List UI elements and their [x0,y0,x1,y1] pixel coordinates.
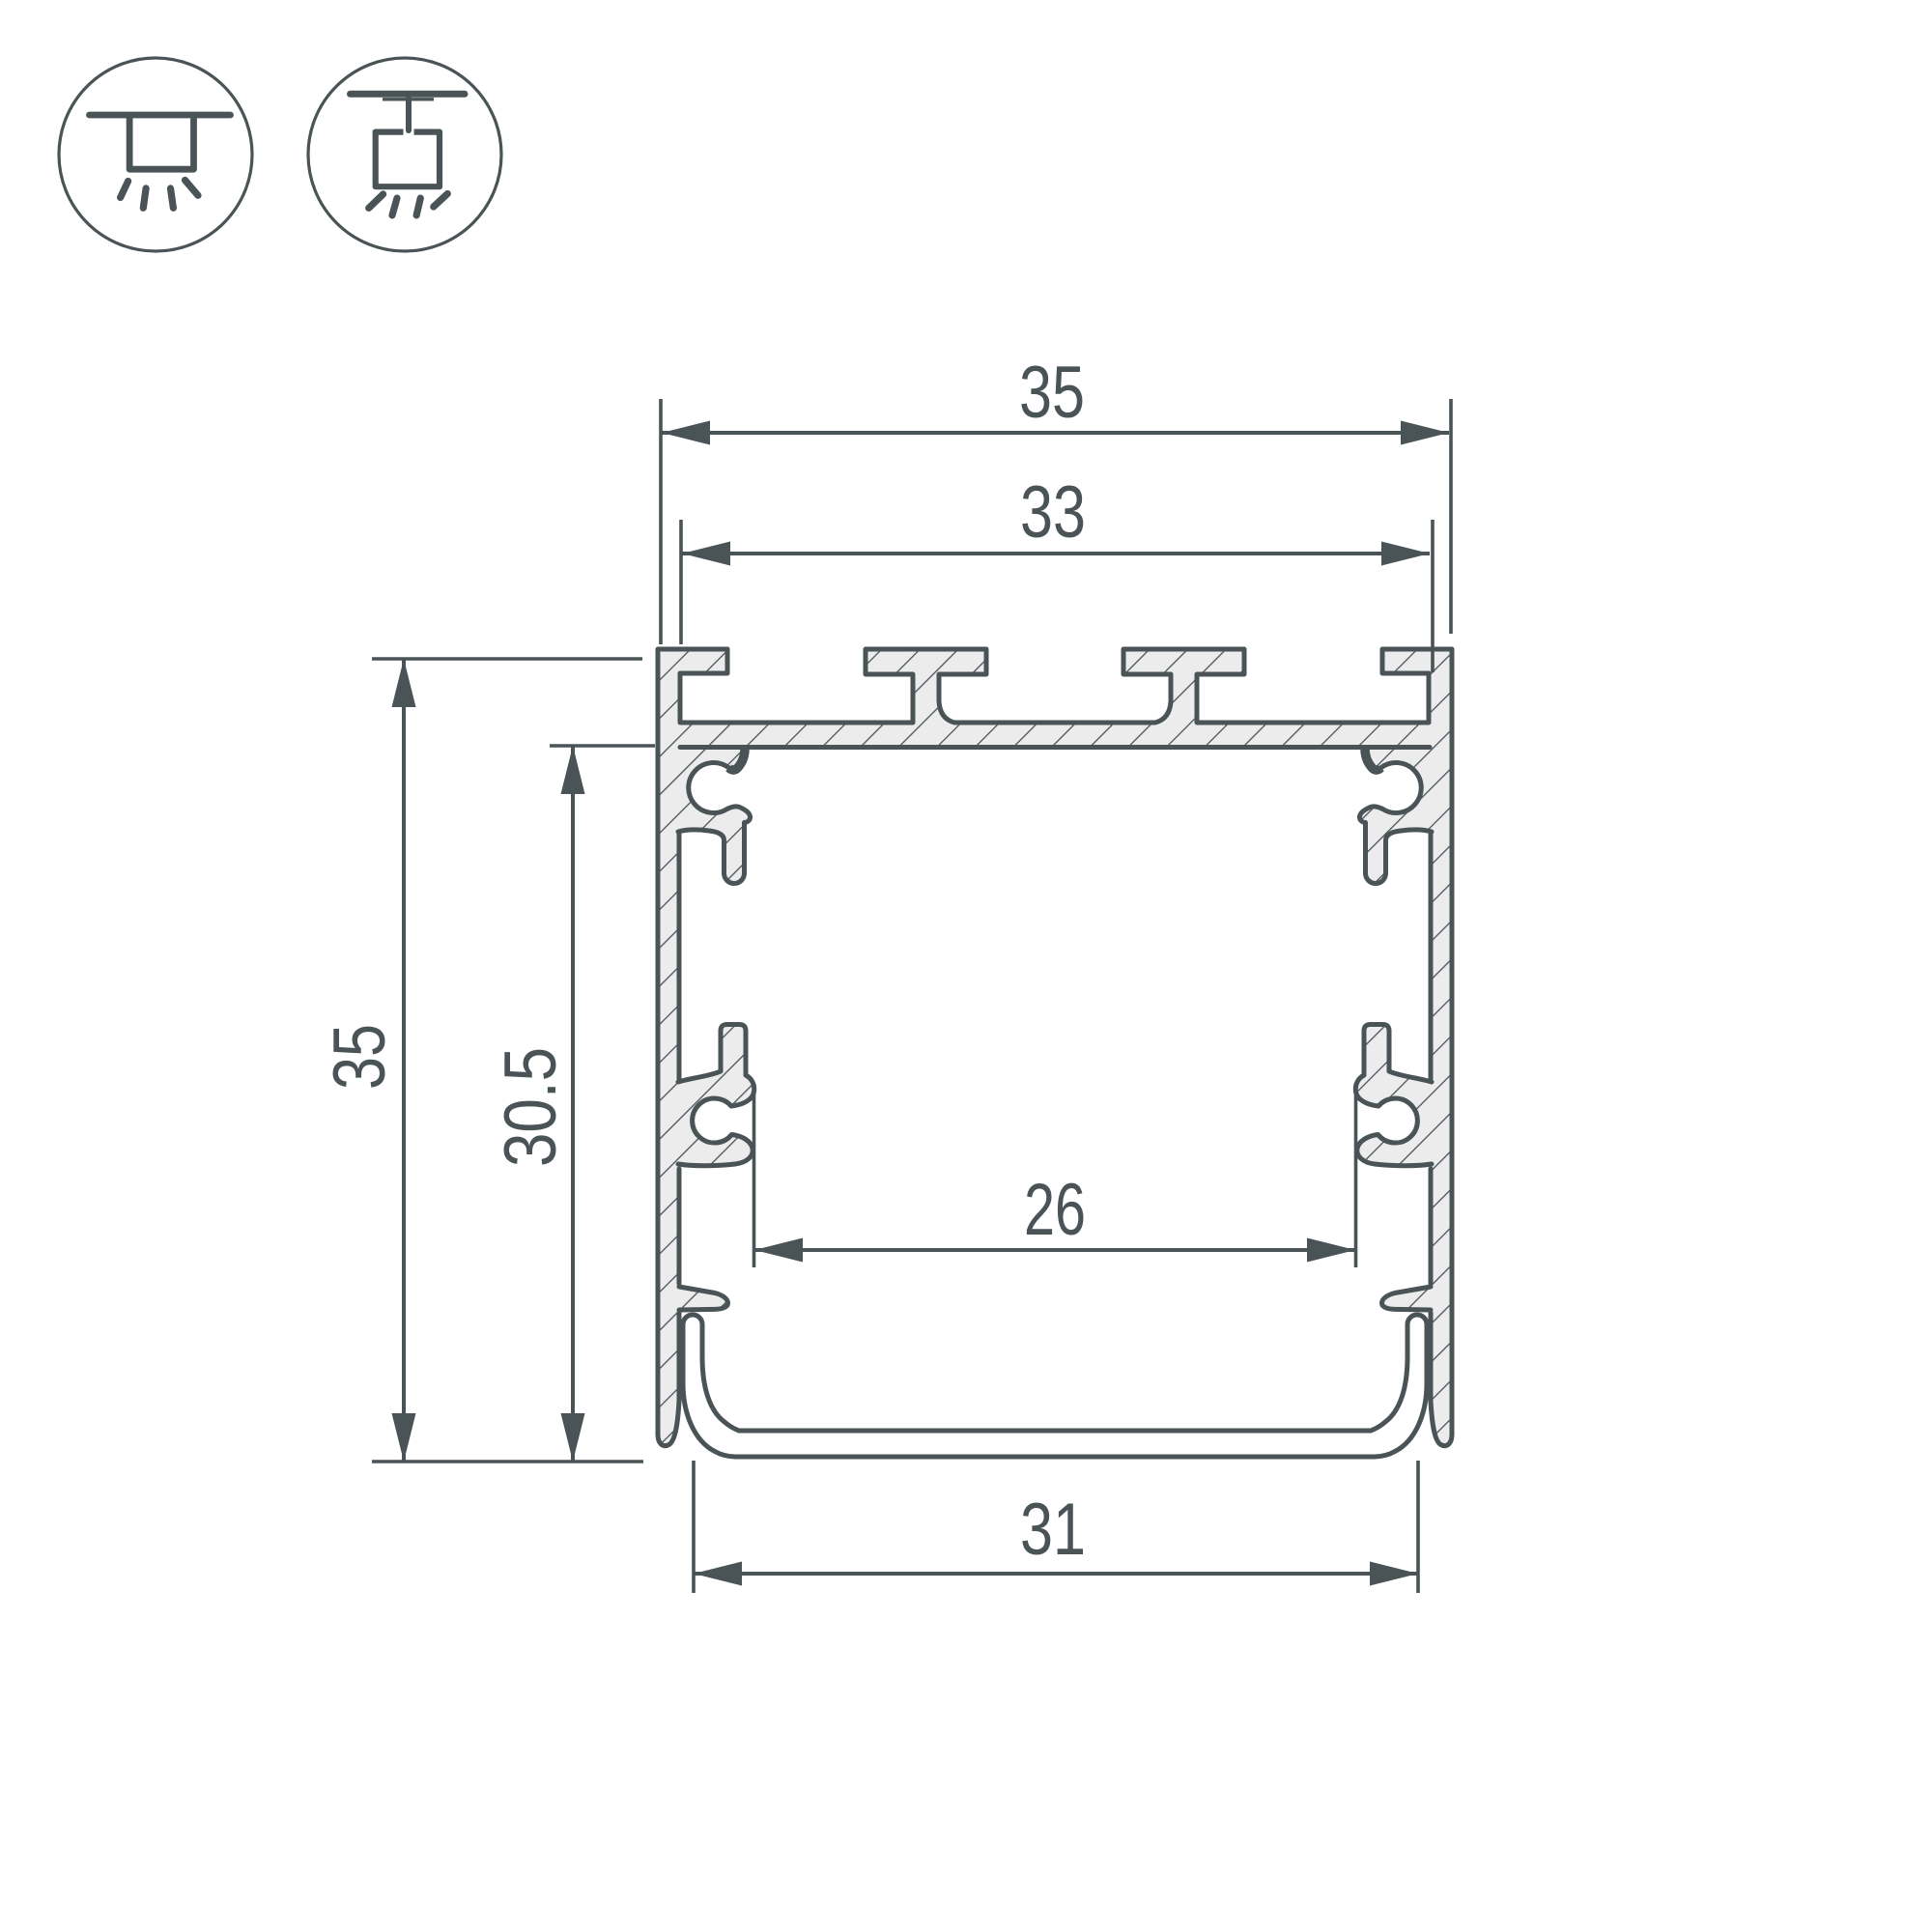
svg-text:26: 26 [1024,1169,1086,1251]
svg-text:30.5: 30.5 [490,1047,572,1167]
svg-text:33: 33 [1020,471,1086,554]
svg-text:31: 31 [1020,1489,1086,1571]
svg-text:35: 35 [319,1024,401,1090]
svg-text:35: 35 [1019,352,1085,434]
